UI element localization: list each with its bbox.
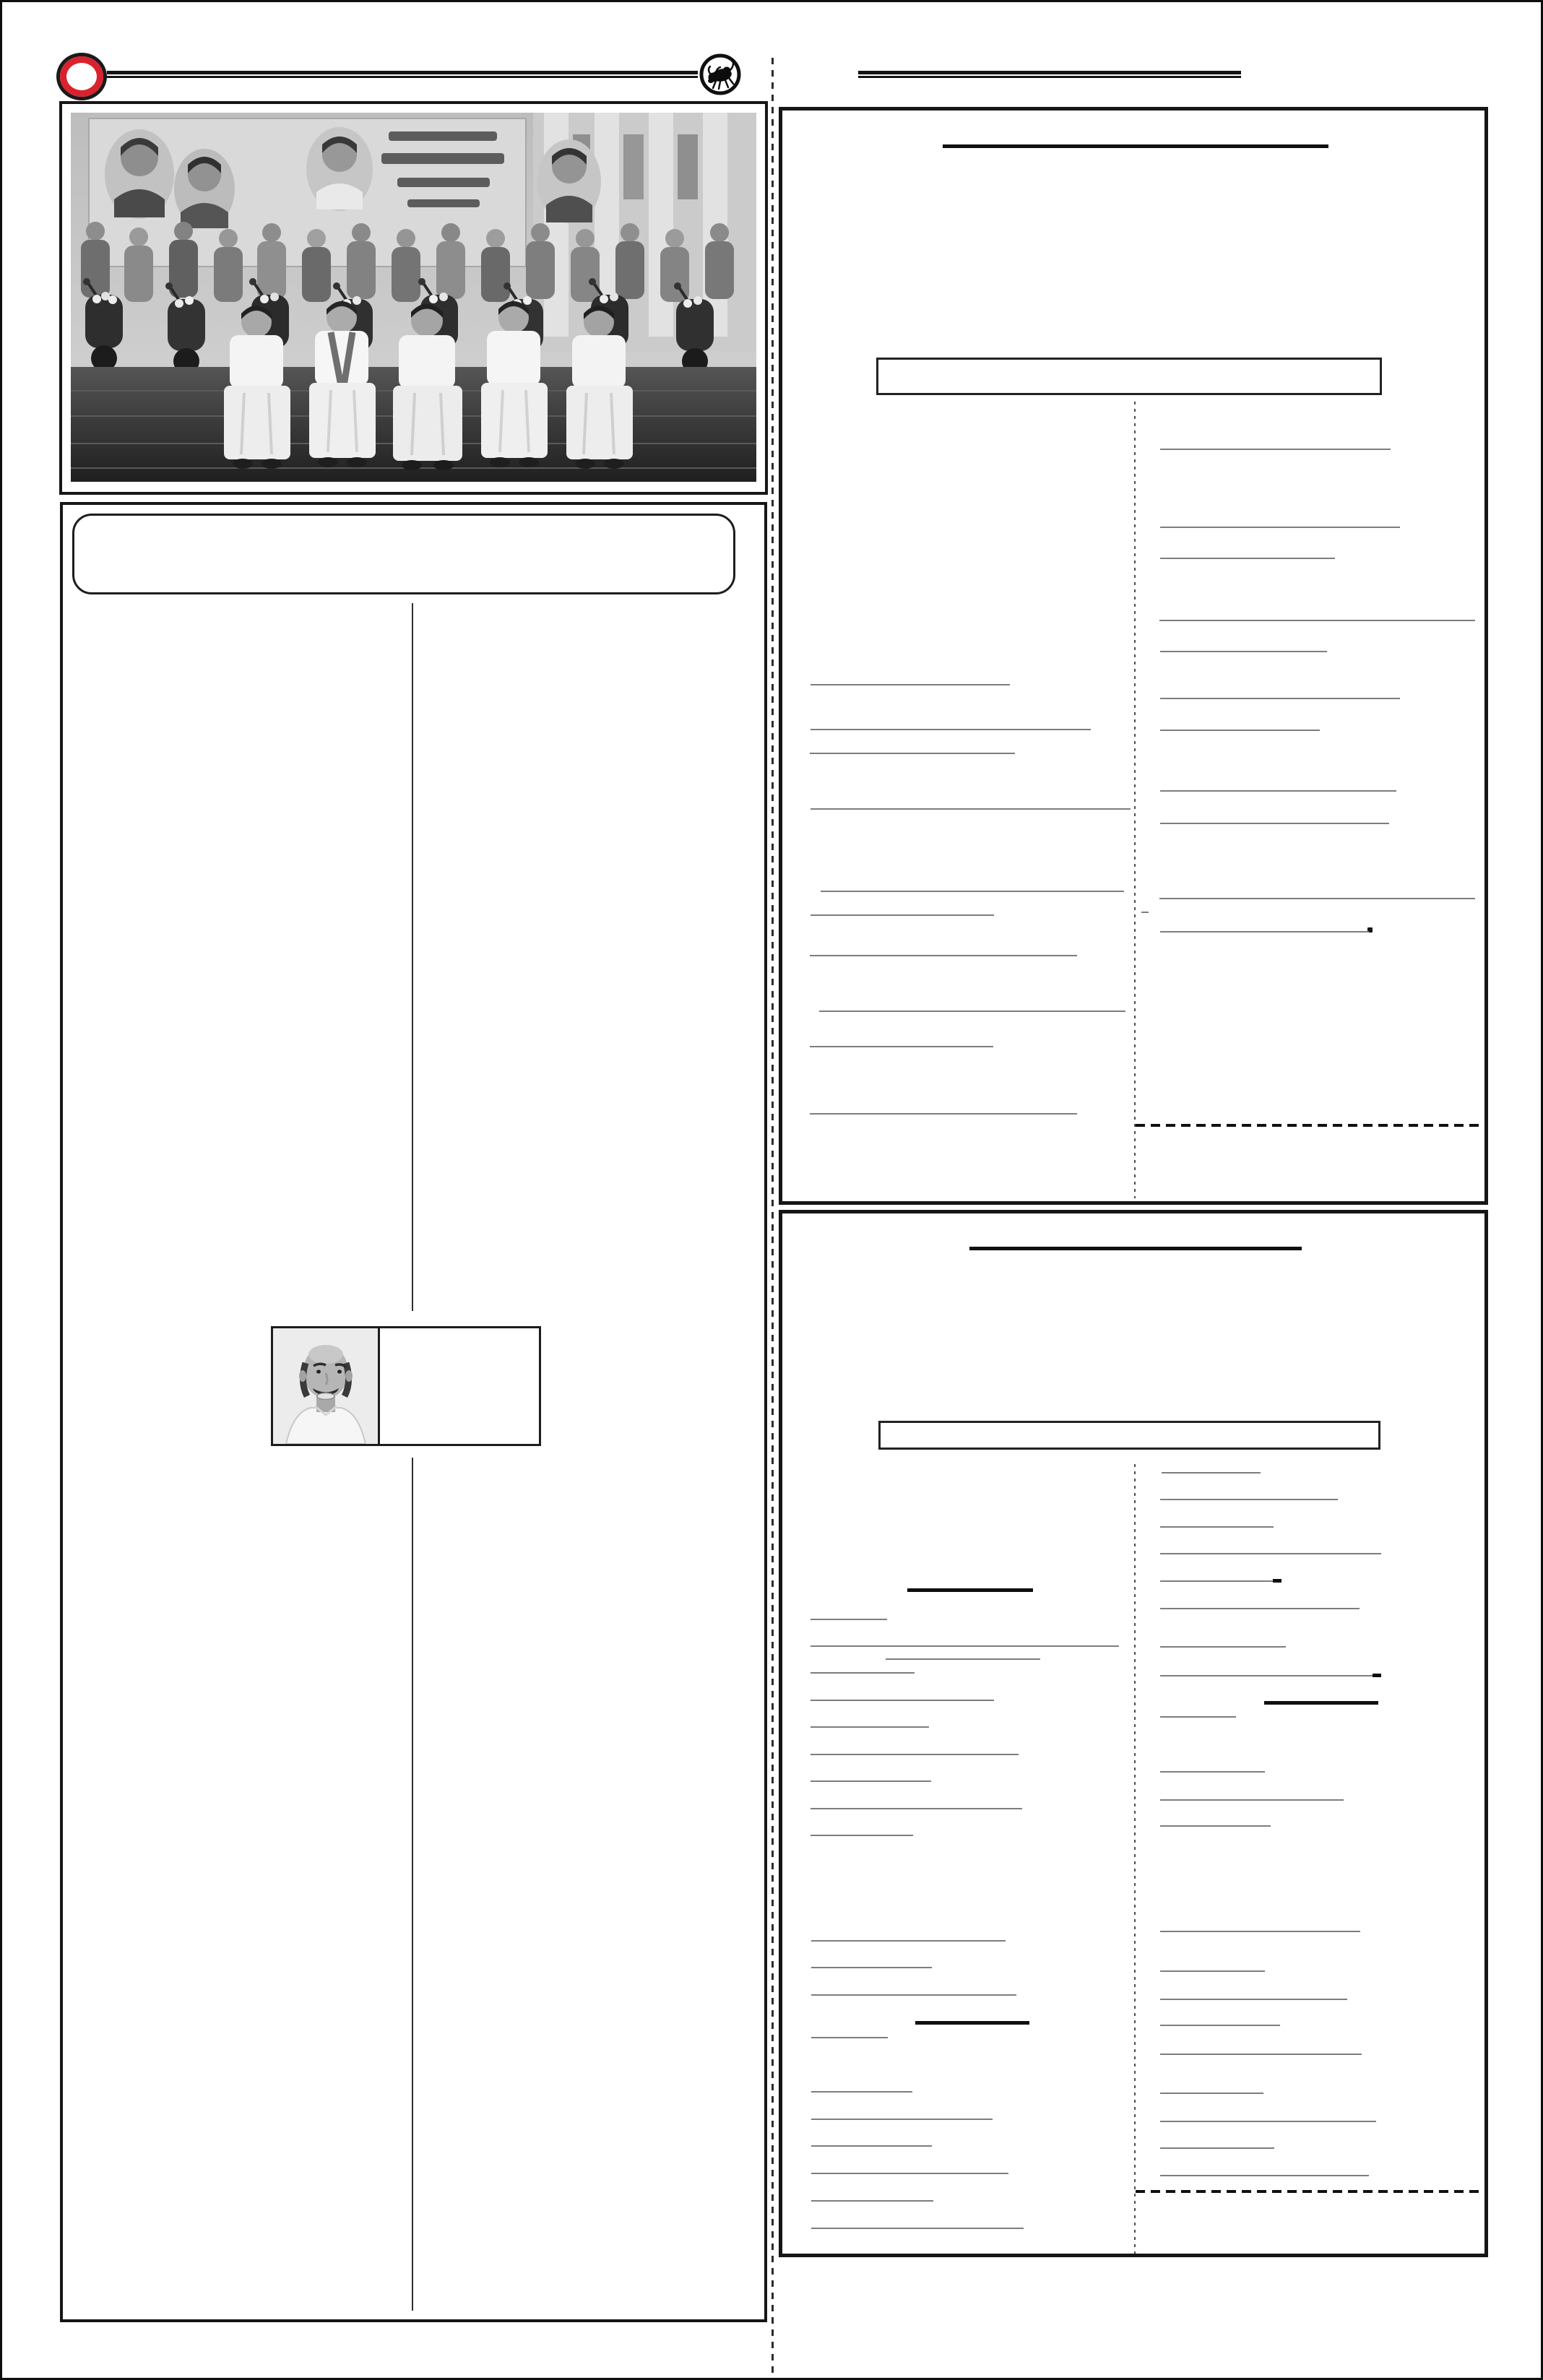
sentence-period-dot — [1367, 927, 1373, 932]
bottom-right-column-divider — [1134, 1464, 1136, 2254]
lead-article-headline-box — [72, 514, 735, 594]
news-photo-frame — [59, 101, 768, 495]
photo-banner-portrait-icon — [537, 139, 601, 223]
news-photo — [71, 113, 756, 482]
bottom-right-headline-underline — [969, 1247, 1302, 1250]
top-right-article-box — [779, 107, 1488, 1205]
masthead-ring-icon — [56, 53, 107, 100]
photo-banner-portrait-icon — [174, 149, 235, 228]
bottom-right-subhead-box — [878, 1421, 1380, 1450]
top-right-cut-line — [1136, 1124, 1484, 1127]
inline-portrait-caption-area — [380, 1328, 539, 1444]
portrait-photo — [273, 1328, 378, 1444]
masthead-rule-right — [858, 71, 1241, 78]
photo-banner-portrait-icon — [306, 127, 373, 211]
masthead-ring-inner — [60, 56, 103, 97]
top-right-column-divider — [1134, 402, 1136, 1198]
masthead-rule-left — [107, 71, 698, 78]
top-right-headline-underline — [943, 144, 1328, 148]
lead-article-column-divider — [412, 1458, 413, 2311]
inline-portrait-box — [271, 1326, 541, 1446]
lead-article-column-divider — [412, 603, 413, 1311]
bull-emblem-icon — [699, 53, 742, 96]
newspaper-page — [0, 0, 1543, 2380]
page-column-divider — [771, 58, 774, 2376]
photo-banner-portrait-icon — [105, 129, 174, 219]
top-right-subhead-box — [876, 358, 1382, 395]
bottom-right-cut-line — [1136, 2190, 1484, 2193]
bottom-right-article-box — [779, 1210, 1488, 2257]
photo-crowd — [81, 222, 734, 302]
